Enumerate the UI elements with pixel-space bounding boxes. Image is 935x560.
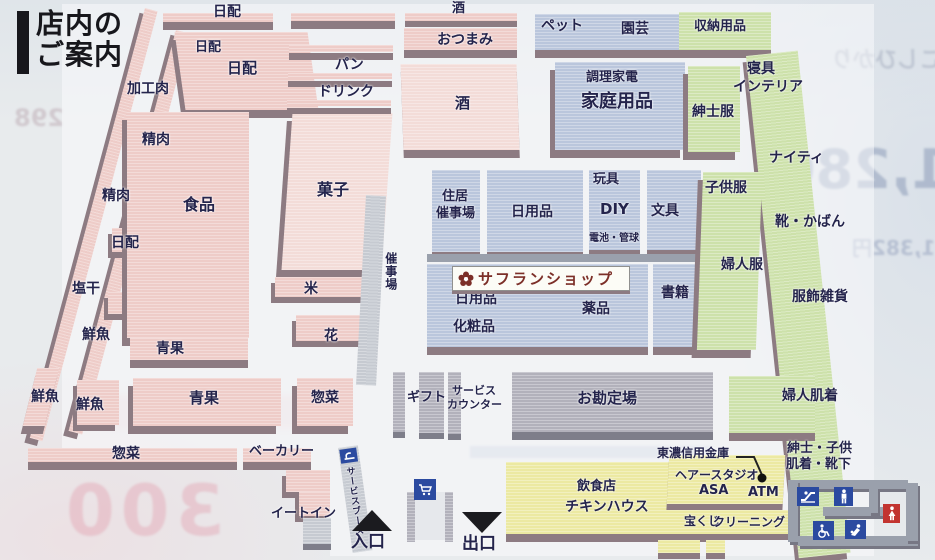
label: 電池・管球 [589, 233, 639, 245]
label: ナイティ [769, 150, 824, 166]
entrance-arrow-icon [352, 510, 392, 531]
label: 玩具 [593, 173, 619, 188]
saffron-shop-label: サフランショップ [478, 268, 614, 289]
label: 紳士・子供 [787, 442, 852, 457]
label: 鮮魚 [31, 389, 59, 405]
label: DIY [600, 201, 629, 218]
bank-pointer-line [734, 449, 772, 485]
label: 書籍 [661, 285, 689, 301]
title-line1: 店内の [36, 8, 123, 39]
wheelchair-icon [813, 521, 834, 540]
label: 日用品 [511, 204, 553, 220]
label: ドリンク [318, 84, 374, 100]
area-eatin-block [286, 470, 330, 492]
label: 婦人服 [721, 257, 763, 273]
area-shoseki-block [653, 264, 703, 347]
escalator-icon [797, 487, 819, 506]
label: サービス [452, 385, 496, 398]
label: インテリア [733, 79, 803, 95]
area-yellow-small [658, 540, 700, 553]
label: 催事場 [383, 252, 397, 291]
entrance-label: 入口 [351, 533, 385, 553]
label: 菓子 [317, 181, 349, 199]
label: イートイン [271, 507, 336, 522]
label: 化粧品 [453, 319, 495, 335]
area-shelf-strip [287, 100, 391, 106]
label: お勘定場 [577, 390, 637, 407]
page-title: 店内の ご案内 [36, 8, 123, 71]
label: 塩干 [72, 281, 100, 297]
label: クリーニング [713, 516, 785, 530]
label: 青果 [189, 390, 219, 407]
label: 日配 [213, 4, 241, 20]
label: 服飾雑貨 [792, 289, 848, 305]
label: カウンター [447, 399, 502, 412]
womens-restroom-icon [883, 504, 900, 523]
print-bleed-left-price: 298 [14, 104, 64, 132]
label: 文具 [651, 203, 679, 219]
mens-restroom-icon [834, 487, 853, 506]
label: おつまみ [437, 32, 493, 48]
exit-label: 出口 [462, 535, 496, 555]
area-shelf-strip [289, 45, 393, 52]
title-line2: ご案内 [36, 39, 123, 70]
area-shelf-strip [291, 13, 395, 21]
label: ASA [699, 484, 729, 499]
label: 肌着・靴下 [786, 458, 851, 473]
label: 惣菜 [112, 446, 140, 462]
label: 寝具 [747, 61, 775, 77]
label: 紳士服 [692, 104, 734, 120]
label: 精肉 [102, 188, 130, 204]
label: ベーカリー [249, 445, 314, 460]
label: 婦人肌着 [782, 388, 838, 404]
label: 加工肉 [127, 81, 169, 97]
label: 花 [324, 328, 338, 344]
label: 住居 [442, 190, 468, 205]
label: 収納用品 [694, 20, 746, 35]
flower-icon [458, 271, 474, 287]
area-counter-pillar [393, 372, 405, 432]
label: 催事場 [436, 207, 475, 222]
label: 靴・かばん [775, 214, 845, 230]
area-yellow-small [706, 540, 725, 553]
label: 米 [304, 281, 318, 297]
label: 鮮魚 [82, 327, 110, 343]
store-guide-map: こしひかり 1,280 1,382円 298 300 [0, 0, 935, 560]
title-bar [17, 11, 29, 74]
baby-room-icon [845, 520, 866, 539]
label: チキンハウス [565, 499, 649, 515]
label: ギフト [407, 391, 446, 406]
label: 精肉 [142, 132, 170, 148]
label: 酒 [452, 2, 465, 17]
facility-wall [869, 487, 878, 513]
label: 日配 [195, 41, 221, 56]
label: ペット [541, 18, 583, 34]
label: 日用品 [455, 291, 497, 307]
label: パン [335, 57, 364, 73]
label: 飲食店 [577, 480, 616, 495]
cart-icon [414, 479, 436, 500]
label: 薬品 [582, 301, 610, 317]
exit-arrow-icon [462, 512, 502, 533]
print-bleed-bottom-price: 300 [60, 470, 224, 552]
label: 青果 [156, 341, 184, 357]
label: 日配 [227, 60, 257, 77]
area-shelf-strip [288, 73, 392, 79]
area-seika-strip [130, 338, 248, 360]
exit-pillar [445, 492, 453, 542]
label: 日配 [111, 235, 139, 251]
saffron-shop-sign: サフランショップ [452, 266, 630, 291]
service-booth-icon [339, 447, 358, 463]
label: 惣菜 [311, 390, 339, 406]
aisle-band [427, 254, 703, 262]
label: ATM [748, 486, 779, 501]
label: 家庭用品 [581, 92, 653, 113]
label: 園芸 [621, 21, 649, 37]
label: 鮮魚 [76, 397, 104, 413]
label: 酒 [455, 95, 470, 112]
label: 調理家電 [586, 71, 638, 86]
label: 子供服 [705, 180, 747, 196]
facility-wall [906, 483, 918, 541]
area-fujin-hadagi-block [729, 376, 815, 433]
label: 食品 [183, 196, 215, 214]
label: 東濃信用金庫 [657, 447, 729, 461]
area-kome-block [275, 277, 370, 297]
